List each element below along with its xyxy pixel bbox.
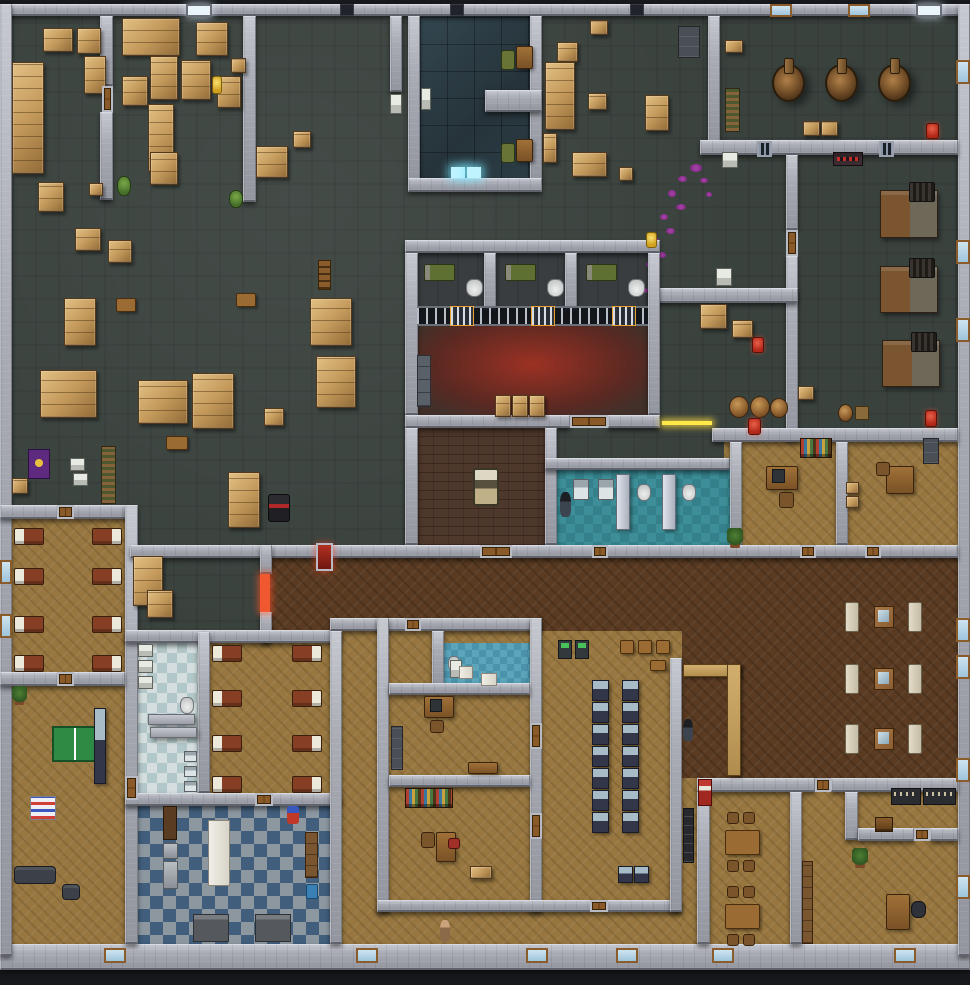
stall <box>616 474 630 530</box>
island <box>481 673 497 686</box>
wall-segment <box>648 253 660 415</box>
stub <box>150 727 197 738</box>
wall-segment <box>708 16 720 142</box>
crate <box>293 131 311 148</box>
wall-segment <box>670 658 682 912</box>
goblin[interactable] <box>117 176 131 196</box>
wall-segment <box>565 253 577 311</box>
desk <box>516 139 533 162</box>
chest[interactable] <box>875 817 893 832</box>
laser-v <box>260 574 270 612</box>
barrel-black <box>268 494 290 522</box>
couch <box>62 884 80 900</box>
bed <box>92 655 122 672</box>
crate <box>43 28 73 52</box>
wall-segment <box>405 428 418 545</box>
toilet <box>682 484 696 501</box>
cabinet <box>391 726 403 770</box>
office-chair <box>911 901 926 918</box>
wall-segment <box>786 256 798 440</box>
crate <box>529 395 545 417</box>
door-h[interactable] <box>57 672 74 686</box>
crate <box>12 478 28 494</box>
wall-segment <box>125 793 342 806</box>
door-h[interactable] <box>592 545 608 558</box>
crate <box>495 395 511 417</box>
bookshelf <box>800 438 832 458</box>
door-h[interactable] <box>255 793 273 806</box>
person[interactable] <box>683 719 693 741</box>
cot <box>505 264 536 281</box>
hydrant[interactable] <box>926 123 939 139</box>
robot[interactable] <box>287 806 299 824</box>
window <box>956 875 970 899</box>
window <box>956 60 970 84</box>
door-v[interactable] <box>530 813 542 839</box>
crate <box>122 18 180 56</box>
island <box>459 666 473 679</box>
vending-red[interactable] <box>698 779 712 806</box>
bed <box>292 690 322 707</box>
door-v[interactable] <box>786 230 798 256</box>
island <box>208 820 230 886</box>
crate <box>264 408 284 426</box>
machine-white[interactable] <box>138 676 153 689</box>
toilet <box>547 279 564 297</box>
chair <box>743 860 755 872</box>
chair <box>876 462 890 476</box>
wall-segment <box>545 458 730 470</box>
window <box>0 614 12 638</box>
desk <box>468 762 498 774</box>
shelf-wood <box>802 861 813 944</box>
crate <box>75 228 101 251</box>
vent <box>450 4 464 16</box>
window <box>956 318 970 342</box>
table-wood <box>725 904 760 929</box>
sink <box>184 766 197 777</box>
floor-wood <box>12 686 125 944</box>
vat <box>772 64 805 102</box>
booth <box>908 602 922 632</box>
door-h[interactable] <box>405 618 421 631</box>
chair <box>743 934 755 946</box>
bed <box>212 735 242 752</box>
gray-table <box>255 914 291 942</box>
display-case[interactable] <box>622 680 639 701</box>
cabinet <box>678 26 700 58</box>
display-case[interactable] <box>592 680 609 701</box>
bed <box>292 645 322 662</box>
counter-metal <box>163 843 178 859</box>
desk <box>516 46 533 69</box>
pingpong <box>52 726 98 762</box>
wall-segment <box>377 900 682 912</box>
bed <box>292 776 322 793</box>
wall-segment <box>700 140 958 155</box>
distillery <box>882 340 940 387</box>
person[interactable] <box>560 492 571 517</box>
splat <box>668 190 676 197</box>
table-booth <box>874 668 894 690</box>
chair <box>421 832 435 848</box>
crate <box>77 28 101 54</box>
table-wood <box>638 640 652 654</box>
machine-white[interactable] <box>70 458 85 471</box>
hydrant[interactable] <box>748 418 761 435</box>
display-case[interactable] <box>622 768 639 789</box>
splat <box>678 176 687 182</box>
door-h[interactable] <box>800 545 816 558</box>
crate <box>821 121 838 136</box>
person-tan[interactable] <box>440 920 450 942</box>
locker <box>417 355 431 407</box>
sink <box>598 479 614 500</box>
toilet <box>466 279 483 297</box>
display-case[interactable] <box>622 702 639 723</box>
crate <box>543 133 557 163</box>
door-v[interactable] <box>125 776 138 800</box>
machine-white[interactable] <box>722 152 738 168</box>
crate <box>40 370 97 418</box>
crate <box>122 76 148 106</box>
bed <box>212 690 242 707</box>
door-h[interactable] <box>590 900 608 912</box>
window <box>894 948 916 963</box>
booth <box>845 664 859 694</box>
wall-segment <box>545 428 557 545</box>
chair <box>727 886 739 898</box>
pipes <box>725 88 740 132</box>
gate[interactable] <box>531 306 555 326</box>
wall-segment <box>389 683 530 695</box>
gold[interactable] <box>212 76 222 94</box>
crate <box>38 182 64 212</box>
crate <box>803 121 820 136</box>
stub <box>148 714 195 725</box>
chair <box>727 934 739 946</box>
shelf-dark <box>683 808 694 863</box>
display-case[interactable] <box>592 790 609 811</box>
window <box>526 948 548 963</box>
chair <box>727 860 739 872</box>
door-h[interactable] <box>865 545 881 558</box>
stall <box>662 474 676 530</box>
door-h[interactable] <box>480 545 512 558</box>
crate <box>147 590 173 618</box>
wall-segment <box>930 828 958 841</box>
barback <box>891 788 921 805</box>
wall-segment <box>786 155 798 230</box>
window <box>956 655 970 679</box>
splat <box>676 204 686 210</box>
display-case[interactable] <box>622 724 639 745</box>
crate <box>590 20 608 35</box>
display-case[interactable] <box>622 812 639 833</box>
barrel-wood <box>838 404 853 422</box>
crate <box>310 298 352 346</box>
wall-segment <box>130 545 958 558</box>
wall-segment <box>198 632 210 793</box>
barrel-wood <box>770 398 788 418</box>
window-lit <box>916 4 942 17</box>
bed <box>92 568 122 585</box>
machine-white[interactable] <box>716 268 732 286</box>
table-wood <box>650 660 666 671</box>
display-case[interactable] <box>592 812 609 833</box>
door-red[interactable] <box>316 543 333 571</box>
booth <box>908 664 922 694</box>
desk-computer <box>424 696 454 718</box>
vat <box>878 64 911 102</box>
wall-segment <box>0 4 970 16</box>
banner <box>28 449 50 479</box>
table-booth <box>874 606 894 628</box>
window <box>712 948 734 963</box>
table-wood <box>166 436 188 450</box>
window <box>956 240 970 264</box>
machine-white[interactable] <box>138 660 153 673</box>
cabinet <box>923 438 939 464</box>
crate <box>846 496 859 508</box>
crate <box>196 22 228 56</box>
sink <box>184 751 197 762</box>
jail-door[interactable] <box>757 141 772 157</box>
wall-segment <box>697 778 815 792</box>
game-map[interactable] <box>0 0 970 985</box>
wall-segment <box>389 775 530 787</box>
crate <box>108 240 132 263</box>
sink <box>573 479 589 500</box>
crate <box>619 167 633 181</box>
machine-white[interactable] <box>138 644 153 657</box>
distillery <box>880 266 938 313</box>
gray-table <box>193 914 229 942</box>
toilet <box>637 484 651 501</box>
crate <box>181 60 211 100</box>
desk <box>886 466 914 494</box>
crate <box>228 472 260 528</box>
crate <box>512 395 528 417</box>
vending-dark[interactable] <box>833 152 863 166</box>
bed <box>92 528 122 545</box>
couch <box>14 866 56 884</box>
bed <box>14 655 44 672</box>
table-wood <box>656 640 670 654</box>
display-case[interactable] <box>592 746 609 767</box>
pipes <box>101 446 116 504</box>
shelf-wood <box>305 832 318 878</box>
crate <box>588 93 607 110</box>
vent <box>630 4 644 16</box>
wall-segment <box>0 4 12 956</box>
chair-green <box>501 50 515 70</box>
crate <box>846 482 859 494</box>
table-booth <box>874 728 894 750</box>
wall-segment <box>432 631 444 687</box>
display-case[interactable] <box>622 790 639 811</box>
window <box>616 948 638 963</box>
bed <box>92 616 122 633</box>
barrel-wood <box>729 396 749 418</box>
crate <box>732 320 753 338</box>
wall-segment <box>790 792 802 944</box>
wall-segment <box>330 631 342 944</box>
crate <box>725 40 743 53</box>
crate <box>89 183 103 196</box>
barback <box>923 788 956 805</box>
window <box>104 948 126 963</box>
hydrant[interactable] <box>752 337 764 353</box>
register[interactable] <box>558 640 572 659</box>
plant <box>12 686 27 705</box>
wall-segment <box>408 178 542 192</box>
display-case[interactable] <box>592 702 609 723</box>
vat <box>825 64 858 102</box>
wall-segment <box>697 792 710 944</box>
chair <box>743 812 755 824</box>
wall-segment <box>485 90 542 112</box>
jail-door[interactable] <box>879 141 894 157</box>
bed <box>14 528 44 545</box>
chair <box>727 812 739 824</box>
desk <box>886 894 910 930</box>
door-h[interactable] <box>570 415 608 428</box>
wall-segment <box>408 16 420 180</box>
crate <box>545 62 575 130</box>
table-wood <box>116 298 136 312</box>
crate <box>645 95 669 131</box>
display-case[interactable] <box>592 724 609 745</box>
table-wood <box>236 293 256 307</box>
gold[interactable] <box>646 232 657 248</box>
door-v[interactable] <box>530 723 542 749</box>
door-v[interactable] <box>102 86 113 112</box>
window <box>356 948 378 963</box>
crate <box>316 356 356 408</box>
distillery <box>880 190 938 238</box>
wall-segment <box>0 944 970 970</box>
sink <box>184 781 197 792</box>
counter <box>727 664 741 776</box>
window <box>770 4 792 17</box>
glow-tile <box>467 167 481 178</box>
chair-red <box>448 838 460 849</box>
crate <box>192 373 234 429</box>
door-h[interactable] <box>914 828 930 841</box>
toilet <box>628 279 645 297</box>
wall-segment <box>608 415 660 428</box>
laser <box>662 421 712 425</box>
foosball <box>30 796 56 820</box>
machine-white[interactable] <box>73 473 88 486</box>
machine-white[interactable] <box>421 88 431 110</box>
window <box>956 758 970 782</box>
crate <box>557 42 578 62</box>
display-case[interactable] <box>622 746 639 767</box>
window <box>0 560 12 584</box>
table-wood <box>725 830 760 855</box>
crate <box>256 146 288 178</box>
machine-well[interactable] <box>473 468 499 506</box>
splat <box>666 228 675 234</box>
bed <box>14 568 44 585</box>
gate[interactable] <box>450 306 474 326</box>
chair <box>430 720 444 733</box>
machine-white[interactable] <box>390 94 402 114</box>
crate <box>231 58 246 73</box>
floor-wood <box>210 643 330 793</box>
crate <box>700 304 727 329</box>
bed <box>292 735 322 752</box>
goblin[interactable] <box>229 190 243 208</box>
plant <box>852 848 868 868</box>
register[interactable] <box>575 640 589 659</box>
booth <box>845 724 859 754</box>
wall-segment <box>845 792 858 840</box>
bookshelf <box>405 788 453 808</box>
glow-tile <box>451 167 465 178</box>
crate <box>572 152 607 177</box>
wall-segment <box>405 415 570 428</box>
window <box>956 618 970 642</box>
door-h[interactable] <box>57 505 74 519</box>
vent <box>340 4 354 16</box>
wall-segment <box>405 240 660 253</box>
wall-segment <box>330 618 542 631</box>
bench <box>855 406 869 420</box>
wall-segment <box>243 16 256 202</box>
display-case[interactable] <box>618 866 633 883</box>
window-lit <box>186 4 212 17</box>
cot <box>586 264 617 281</box>
display-case[interactable] <box>94 708 106 784</box>
crate <box>150 56 178 100</box>
hydrant[interactable] <box>925 410 937 427</box>
window <box>848 4 870 17</box>
desk-computer <box>766 466 798 490</box>
wall-segment <box>390 16 402 92</box>
toilet <box>180 697 194 714</box>
chair <box>743 886 755 898</box>
splat <box>660 214 668 220</box>
trash[interactable] <box>306 884 318 899</box>
door-h[interactable] <box>815 778 831 792</box>
gate[interactable] <box>612 306 636 326</box>
booth <box>845 602 859 632</box>
bed <box>212 776 242 793</box>
wall-segment <box>958 4 970 956</box>
crate <box>138 380 188 424</box>
bed <box>14 616 44 633</box>
chair <box>779 492 794 508</box>
crate <box>798 386 814 400</box>
table-wood <box>620 640 634 654</box>
display-case[interactable] <box>634 866 649 883</box>
crate <box>150 152 178 185</box>
barrel-wood <box>750 396 770 418</box>
bed <box>212 645 242 662</box>
wall-segment <box>377 618 389 912</box>
plant <box>727 528 743 548</box>
splat <box>690 164 702 172</box>
counter-metal <box>163 861 178 889</box>
cot <box>424 264 455 281</box>
booth <box>908 724 922 754</box>
crate <box>12 62 44 174</box>
display-case[interactable] <box>592 768 609 789</box>
ladder <box>318 260 331 290</box>
